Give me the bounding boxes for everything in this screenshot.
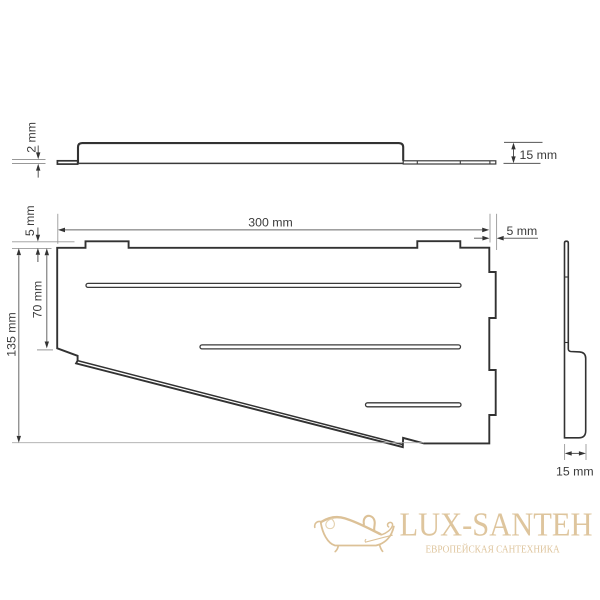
svg-text:2 mm: 2 mm (25, 122, 39, 153)
svg-text:135 mm: 135 mm (5, 312, 19, 356)
svg-text:5 mm: 5 mm (23, 205, 37, 236)
svg-text:LUX-SANTEH: LUX-SANTEH (400, 505, 593, 543)
svg-text:300 mm: 300 mm (248, 216, 292, 230)
svg-text:15 mm: 15 mm (520, 148, 558, 162)
svg-text:70 mm: 70 mm (31, 281, 45, 319)
svg-text:5 mm: 5 mm (507, 224, 538, 238)
svg-text:15 mm: 15 mm (556, 465, 594, 479)
svg-text:ЕВРОПЕЙСКАЯ САНТЕХНИКА: ЕВРОПЕЙСКАЯ САНТЕХНИКА (426, 543, 561, 556)
